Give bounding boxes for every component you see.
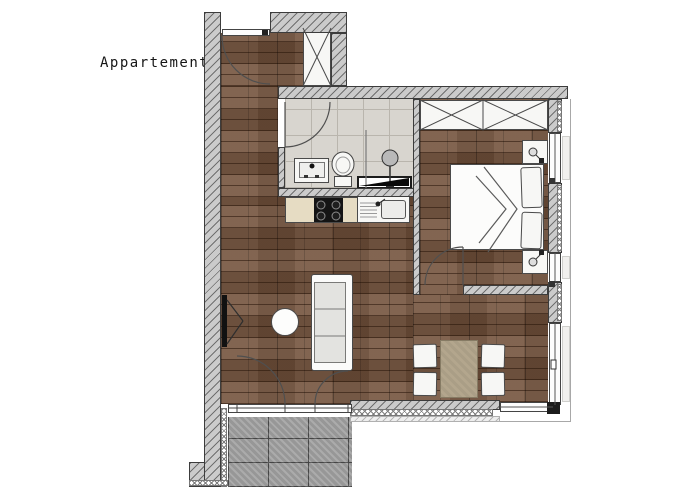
dining-chair — [481, 344, 506, 369]
window-sill — [562, 326, 570, 402]
balcony-floor — [228, 417, 352, 487]
dining-chair — [413, 372, 437, 396]
wall-bedroom-left — [413, 99, 420, 295]
bathroom-sink-basin — [299, 162, 325, 178]
insulation-right — [557, 101, 562, 132]
sofa-cushions — [314, 282, 346, 363]
insulation-balcony-foot — [189, 480, 228, 486]
balcony-french-doors — [228, 404, 352, 413]
entry-door-leaf — [222, 29, 270, 36]
window-bedroom-low — [549, 253, 561, 282]
wall-left — [204, 12, 221, 487]
insulation-right — [557, 284, 562, 321]
nightstand — [522, 250, 548, 274]
wall-bathroom-left — [278, 147, 285, 188]
wall-bedroom-bottom — [463, 285, 548, 295]
nightstand — [522, 140, 548, 164]
side-table-round — [271, 308, 299, 336]
wall-top-entry — [270, 12, 347, 33]
entry-wardrobe — [303, 28, 331, 86]
floor-plan: Appartement 4 — [0, 0, 700, 500]
sink-basin — [381, 200, 406, 219]
bedroom-wardrobe — [420, 100, 548, 130]
window-bedroom — [549, 133, 561, 183]
pillow — [520, 167, 542, 209]
dining-table — [440, 340, 478, 398]
exterior-strip-bottom — [350, 416, 500, 422]
corner-post — [547, 402, 560, 414]
exterior-outline-right — [570, 99, 571, 421]
tv-panel — [222, 295, 227, 347]
window-sill — [562, 256, 570, 279]
toilet-tank — [334, 176, 352, 187]
bedroom-door-threshold — [420, 285, 463, 295]
dining-chair — [481, 372, 505, 396]
cooktop — [314, 198, 343, 222]
window-dining — [549, 323, 561, 405]
window-sill — [562, 136, 570, 180]
dining-chair — [413, 344, 438, 369]
insulation-right — [557, 185, 562, 251]
exterior-outline-bottom — [500, 421, 571, 422]
insulation-bottom — [350, 409, 493, 416]
insulation-balcony-left — [221, 408, 227, 487]
wall-top-main — [278, 86, 568, 99]
pillow — [520, 212, 542, 250]
wall-entry-right — [331, 33, 347, 86]
wall-kitchen — [278, 188, 420, 197]
window-bottom-corner — [500, 402, 553, 412]
corridor-floor — [221, 86, 278, 197]
